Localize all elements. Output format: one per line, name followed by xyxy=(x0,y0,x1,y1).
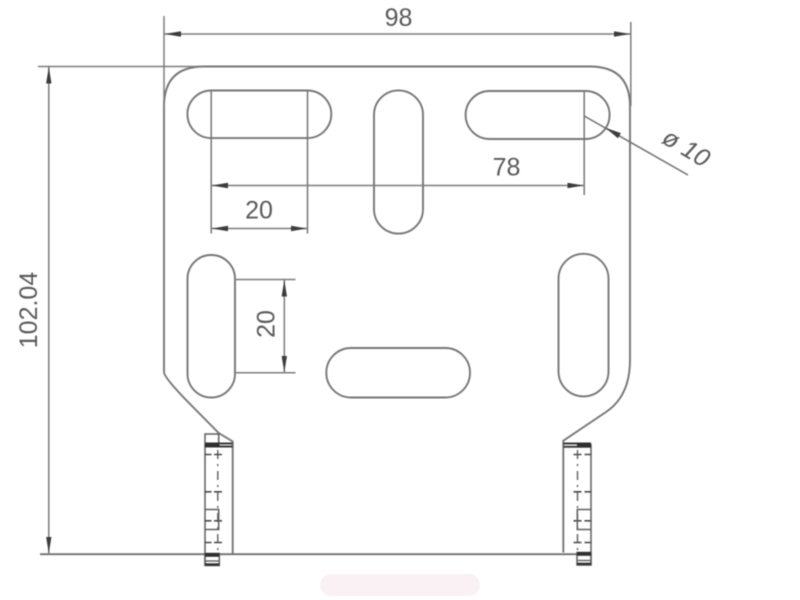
svg-text:20: 20 xyxy=(253,310,281,338)
svg-text:20: 20 xyxy=(245,197,273,225)
svg-text:98: 98 xyxy=(385,4,413,32)
svg-text:102.04: 102.04 xyxy=(15,272,43,349)
svg-text:ø 10: ø 10 xyxy=(657,123,714,173)
svg-text:78: 78 xyxy=(493,154,521,182)
